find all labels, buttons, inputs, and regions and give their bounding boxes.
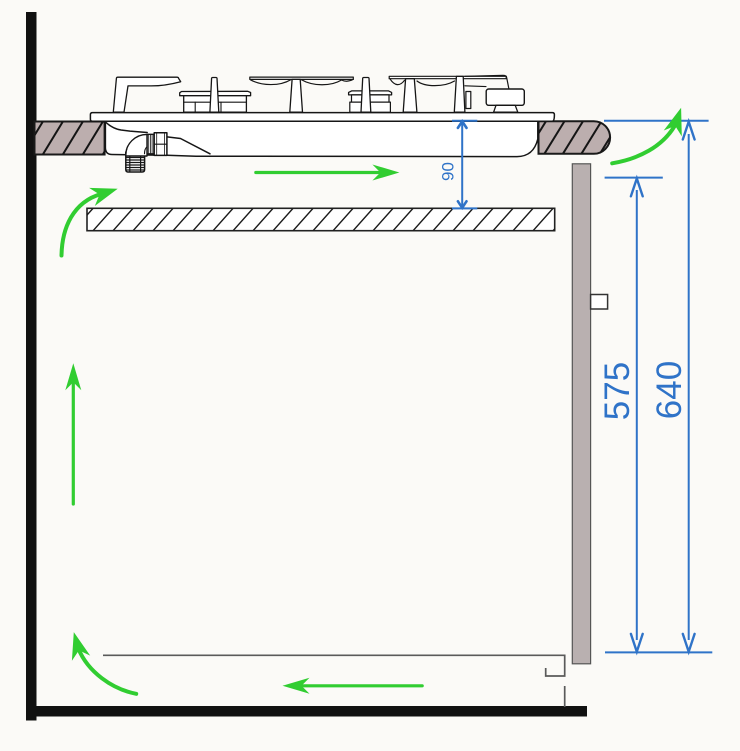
svg-text:575: 575 xyxy=(598,362,637,420)
svg-text:90: 90 xyxy=(438,162,457,181)
svg-text:640: 640 xyxy=(650,361,689,419)
